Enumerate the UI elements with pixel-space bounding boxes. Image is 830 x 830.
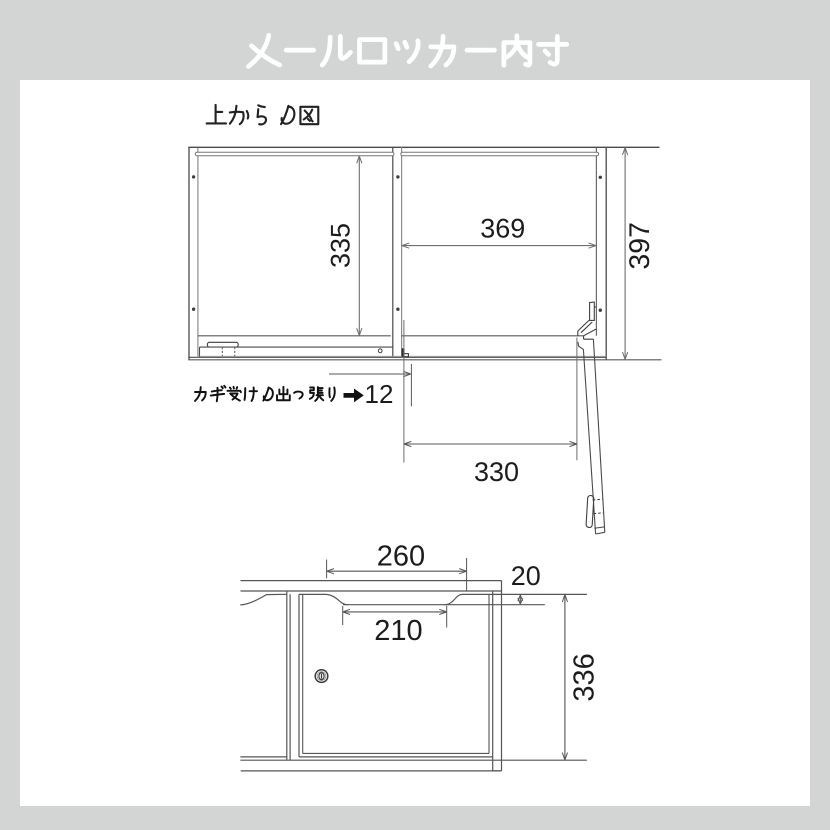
svg-text:12: 12 [365, 379, 394, 409]
svg-text:210: 210 [374, 615, 422, 647]
svg-text:335: 335 [326, 223, 356, 268]
svg-text:260: 260 [377, 541, 425, 573]
svg-text:330: 330 [474, 457, 519, 487]
svg-text:369: 369 [480, 214, 525, 244]
svg-text:336: 336 [569, 653, 601, 701]
svg-text:20: 20 [511, 561, 541, 591]
svg-text:397: 397 [624, 222, 656, 270]
